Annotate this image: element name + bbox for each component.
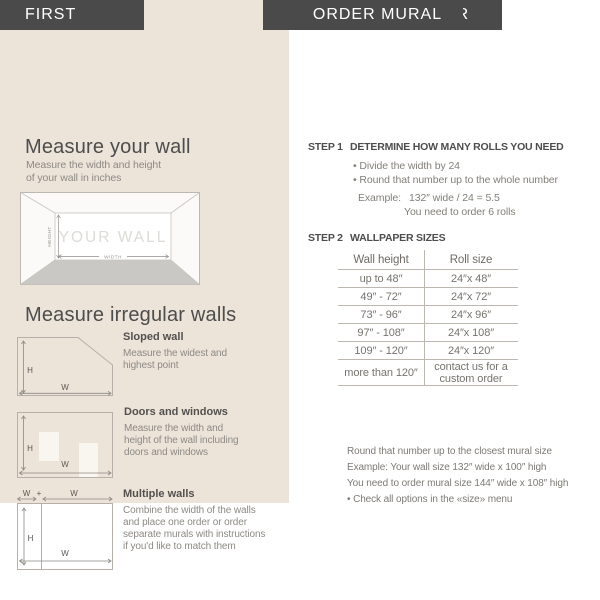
table-cell-wall-height: up to 48″ (338, 270, 425, 287)
w-label: W (61, 383, 69, 392)
step2-label: STEP 2 (308, 232, 343, 244)
ordering-guide-page: ORDERING GUIDE FIRST Measure your wall M… (0, 0, 600, 600)
step1-bullet-1: • Divide the width by 24 (353, 159, 558, 173)
doors-windows-title: Doors and windows (124, 406, 284, 418)
table-header-wall-height: Wall height (338, 250, 425, 269)
mural-line-4: • Check all options in the «size» menu (347, 492, 568, 508)
step1-bullet-2: • Round that number up to the whole numb… (353, 173, 558, 187)
door-shape (79, 443, 98, 477)
table-cell-roll-size: 24″x 120″ (425, 342, 517, 359)
h-arrow (22, 416, 26, 470)
w-arrow (20, 559, 112, 563)
table-cell-roll-size: 24″x 96″ (425, 306, 517, 323)
table-cell-roll-size: 24″x 72″ (425, 288, 517, 305)
table-header-row: Wall height Roll size (338, 250, 518, 270)
table-row: 109″ - 120″ 24″x 120″ (338, 342, 518, 360)
sloped-wall-title: Sloped wall (123, 331, 283, 343)
h-label: H (27, 444, 33, 453)
w-label: W (23, 489, 31, 498)
doors-windows-description: Measure the width and height of the wall… (124, 423, 284, 459)
multiple-walls-diagram: W + W H W (17, 485, 113, 570)
h-arrow (22, 508, 26, 565)
measure-wall-description: Measure the width and height of your wal… (26, 159, 161, 184)
wall-room-diagram: YOUR WALL HEIGHT WIDTH (20, 192, 200, 285)
step1-example-label: Example: (358, 192, 401, 204)
step1-example-value: 132″ wide / 24 = 5.5 (409, 192, 500, 204)
section-header-order-mural-label: ORDER MURAL (313, 6, 442, 24)
w-label: W (70, 489, 78, 498)
order-mural-instructions: Round that number up to the closest mura… (347, 444, 568, 508)
h-label: H (28, 534, 34, 543)
step1-title: DETERMINE HOW MANY ROLLS YOU NEED (350, 141, 564, 153)
table-cell-wall-height: 73″ - 96″ (338, 306, 425, 323)
step1-bullets: • Divide the width by 24 • Round that nu… (353, 159, 558, 187)
section-header-order-mural: ORDER MURAL (292, 0, 463, 30)
step1-label: STEP 1 (308, 141, 343, 153)
mural-line-3: You need to order mural size 144″ wide x… (347, 476, 568, 492)
doors-windows-item: Doors and windows Measure the width and … (124, 406, 284, 459)
multiple-walls-description: Combine the width of the walls and place… (123, 505, 283, 553)
your-wall-label: YOUR WALL (59, 229, 168, 246)
table-row: up to 48″ 24″x 48″ (338, 270, 518, 288)
table-row: 97″ - 108″ 24″x 108″ (338, 324, 518, 342)
doors-windows-diagram: H W (17, 412, 113, 478)
sloped-wall-diagram: H W (17, 335, 113, 398)
table-cell-roll-size: 24″x 108″ (425, 324, 517, 341)
step2-title: WALLPAPER SIZES (350, 232, 445, 244)
plus-label: + (37, 489, 42, 498)
table-cell-roll-size: contact us for a custom order (425, 360, 517, 385)
wallpaper-sizes-table: Wall height Roll size up to 48″ 24″x 48″… (338, 250, 518, 386)
multiple-walls-title: Multiple walls (123, 488, 283, 500)
table-cell-roll-size: 24″x 48″ (425, 270, 517, 287)
table-cell-wall-height: 109″ - 120″ (338, 342, 425, 359)
table-row: more than 120″ contact us for a custom o… (338, 360, 518, 386)
measure-wall-heading: Measure your wall (25, 136, 191, 159)
section-header-first-label: FIRST (25, 6, 76, 24)
table-cell-wall-height: 97″ - 108″ (338, 324, 425, 341)
table-header-roll-size: Roll size (425, 250, 517, 269)
sloped-wall-item: Sloped wall Measure the widest and highe… (123, 331, 283, 372)
mural-line-2: Example: Your wall size 132″ wide x 100″… (347, 460, 568, 476)
multiple-walls-item: Multiple walls Combine the width of the … (123, 488, 283, 553)
w-label: W (61, 460, 69, 469)
width-label: WIDTH (104, 254, 122, 260)
table-cell-wall-height: 49″ - 72″ (338, 288, 425, 305)
h-arrow (22, 341, 26, 393)
window-shape (39, 432, 59, 461)
height-label: HEIGHT (47, 226, 53, 247)
mural-line-1: Round that number up to the closest mura… (347, 444, 568, 460)
sloped-wall-description: Measure the widest and highest point (123, 348, 283, 372)
table-cell-wall-height: more than 120″ (338, 360, 425, 385)
table-row: 49″ - 72″ 24″x 72″ (338, 288, 518, 306)
section-header-first: FIRST (0, 0, 144, 30)
h-label: H (27, 366, 33, 375)
irregular-walls-heading: Measure irregular walls (25, 304, 236, 327)
w-label: W (61, 549, 69, 558)
step1-example-note: You need to order 6 rolls (404, 206, 516, 218)
table-row: 73″ - 96″ 24″x 96″ (338, 306, 518, 324)
